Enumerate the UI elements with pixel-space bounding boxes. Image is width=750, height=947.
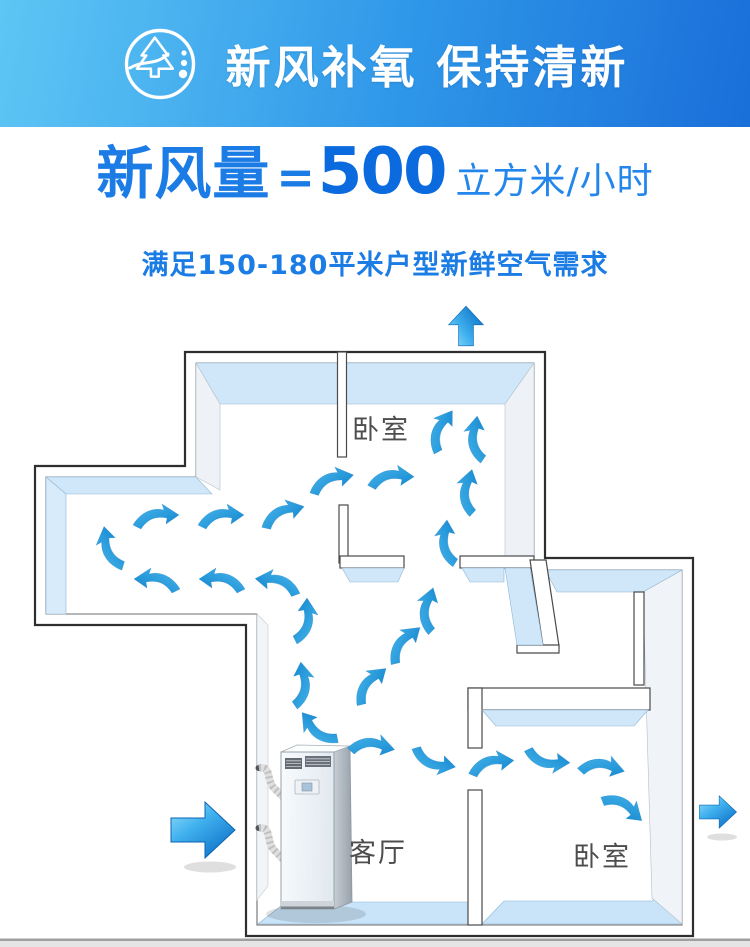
airflow-arrow-icon <box>598 782 649 831</box>
airflow-arrow-icon <box>306 464 356 497</box>
unit-base-line <box>281 907 334 910</box>
airflow-arrow-icon <box>524 747 571 774</box>
entry-room-wall <box>634 592 644 685</box>
room-label-bedroom-right: 卧室 <box>573 842 631 873</box>
headline-equals: = <box>276 150 315 204</box>
unit-side-panel <box>334 746 352 909</box>
top-partition-lower <box>339 505 348 563</box>
unit-front-panel <box>281 752 334 909</box>
airflow-arrow-icon <box>467 749 515 777</box>
airflow-arrow-icon <box>134 568 180 593</box>
air-exhaust-arrow-right <box>699 796 736 828</box>
airflow-arrow-icon <box>293 598 318 644</box>
unit-display <box>302 783 312 791</box>
airflow-arrow-icon <box>198 504 244 529</box>
airflow-arrow-icon <box>432 519 461 567</box>
pine-tree-glyph <box>137 37 173 76</box>
air-exhaust-arrow-top <box>449 306 484 346</box>
airflow-arrow-icon <box>93 524 126 574</box>
airflow-arrow-icon <box>133 504 179 529</box>
top-partition-upper <box>338 352 347 457</box>
airflow-arrow-icon <box>257 496 308 531</box>
airflow-arrow-icon <box>254 568 302 598</box>
airflow-arrow-icon <box>287 661 318 710</box>
dot-icon <box>181 59 187 65</box>
room-label-living: 客厅 <box>349 838 407 869</box>
airflow-arrow-icon <box>378 619 429 668</box>
airflow-arrow-icon <box>344 660 395 709</box>
pine-tree-fresh-air-icon <box>122 26 198 102</box>
headline-unit: 立方米/小时 <box>456 152 654 204</box>
arrow-shadow <box>184 862 236 873</box>
dot-icon <box>181 50 186 55</box>
airflow-arrow-icon <box>368 464 415 491</box>
fresh-air-infographic: { "banner": { "title": "新风补氧 保持清新", "ico… <box>0 0 750 947</box>
unit-control-panel <box>295 780 319 794</box>
dot-icon <box>178 69 186 77</box>
wind-swoosh-line <box>130 54 168 68</box>
airflow-arrow-icon <box>408 745 458 778</box>
room-label-bedroom-top: 卧室 <box>352 415 410 446</box>
fresh-air-ventilation-unit <box>256 745 367 923</box>
headline-value: 500 <box>318 135 446 209</box>
bedroom-north-wall <box>468 688 650 710</box>
subtitle-text: 满足150-180平米户型新鲜空气需求 <box>0 243 750 282</box>
airflow-arrow-icon <box>576 748 627 785</box>
room-labels: 卧室 客厅 卧室 <box>349 415 631 873</box>
hall-wall-right-segment <box>460 556 534 568</box>
headline-row: 新风量 = 500 立方米/小时 <box>0 128 750 208</box>
floorplan-diagram: 卧室 客厅 卧室 <box>0 290 750 947</box>
header-banner: 新风补氧 保持清新 <box>0 0 750 127</box>
entry-diagonal-wall-cap <box>517 645 559 653</box>
page-divider <box>0 939 750 947</box>
banner-title: 新风补氧 保持清新 <box>226 31 629 96</box>
airflow-arrow-icon <box>460 415 491 464</box>
airflow-arrow-icon <box>417 404 464 456</box>
airflow-arrow-icon <box>199 568 245 593</box>
arrow-shadow <box>707 834 737 841</box>
air-intake-arrow-left <box>171 802 235 858</box>
bedroom-west-wall-lower <box>468 790 482 925</box>
airflow-arrow-icon <box>449 467 485 518</box>
bedroom-west-wall-upper <box>468 688 482 748</box>
hall-wall-left-segment <box>340 556 404 568</box>
airflow-arrow-icon <box>347 728 398 763</box>
headline-label: 新风量 <box>96 128 270 210</box>
